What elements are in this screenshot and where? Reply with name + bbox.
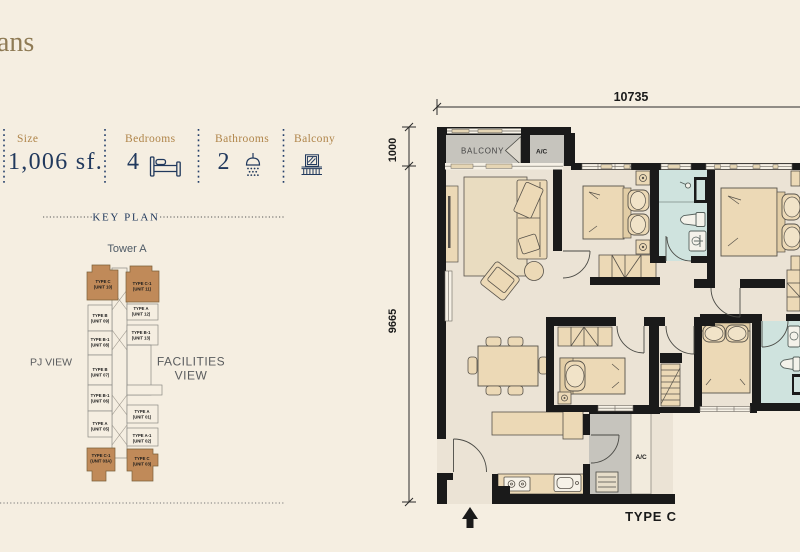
svg-text:TYPE B: TYPE B (92, 313, 107, 318)
svg-text:Tower A: Tower A (107, 243, 147, 255)
svg-text:ans: ans (0, 27, 34, 58)
svg-text:VIEW: VIEW (175, 369, 208, 383)
svg-text:TYPE A-1: TYPE A-1 (133, 433, 152, 438)
svg-text:TYPE B-1: TYPE B-1 (132, 330, 152, 335)
svg-text:TYPE C-1: TYPE C-1 (92, 453, 112, 458)
svg-text:4: 4 (127, 149, 139, 175)
svg-text:9665: 9665 (387, 309, 399, 333)
svg-text:FACILITIES: FACILITIES (157, 355, 225, 369)
svg-text:A/C: A/C (636, 454, 648, 461)
svg-text:BALCONY: BALCONY (461, 147, 504, 156)
svg-text:A/C: A/C (536, 149, 548, 156)
svg-text:Bedrooms: Bedrooms (125, 133, 176, 145)
svg-text:(UNIT 01): (UNIT 01) (133, 415, 152, 420)
svg-text:(UNIT 11): (UNIT 11) (133, 287, 152, 292)
svg-text:(UNIT 09): (UNIT 09) (91, 319, 110, 324)
svg-text:TYPE C: TYPE C (625, 509, 677, 524)
svg-text:10735: 10735 (614, 90, 649, 104)
svg-text:(UNIT 08): (UNIT 08) (91, 343, 110, 348)
svg-text:TYPE C: TYPE C (134, 456, 149, 461)
svg-text:TYPE A: TYPE A (93, 421, 108, 426)
svg-text:(UNIT 02): (UNIT 02) (133, 439, 152, 444)
svg-text:TYPE C-1: TYPE C-1 (133, 281, 153, 286)
svg-text:TYPE B-1: TYPE B-1 (91, 393, 111, 398)
svg-text:TYPE A: TYPE A (134, 306, 149, 311)
svg-text:TYPE B: TYPE B (92, 367, 107, 372)
svg-text:(UNIT 05): (UNIT 05) (91, 427, 110, 432)
svg-text:2: 2 (218, 149, 230, 175)
svg-text:TYPE A: TYPE A (135, 409, 150, 414)
svg-text:(UNIT 03A): (UNIT 03A) (90, 459, 112, 464)
svg-text:Balcony: Balcony (294, 133, 335, 145)
svg-text:(UNIT 10): (UNIT 10) (94, 285, 113, 290)
svg-text:1,006 sf.: 1,006 sf. (8, 149, 103, 175)
svg-text:Size: Size (17, 133, 38, 145)
svg-text:(UNIT 03): (UNIT 03) (133, 462, 152, 467)
svg-text:(UNIT 07): (UNIT 07) (91, 373, 110, 378)
svg-text:(UNIT 06): (UNIT 06) (91, 399, 110, 404)
svg-text:PJ VIEW: PJ VIEW (30, 357, 72, 369)
svg-text:1000: 1000 (387, 138, 399, 162)
svg-text:TYPE C: TYPE C (95, 279, 110, 284)
svg-text:(UNIT 13): (UNIT 13) (132, 336, 151, 341)
svg-text:Bathrooms: Bathrooms (215, 133, 269, 145)
svg-text:KEY PLAN: KEY PLAN (92, 212, 159, 224)
svg-text:(UNIT 12): (UNIT 12) (132, 312, 151, 317)
svg-text:TYPE B-1: TYPE B-1 (91, 337, 111, 342)
